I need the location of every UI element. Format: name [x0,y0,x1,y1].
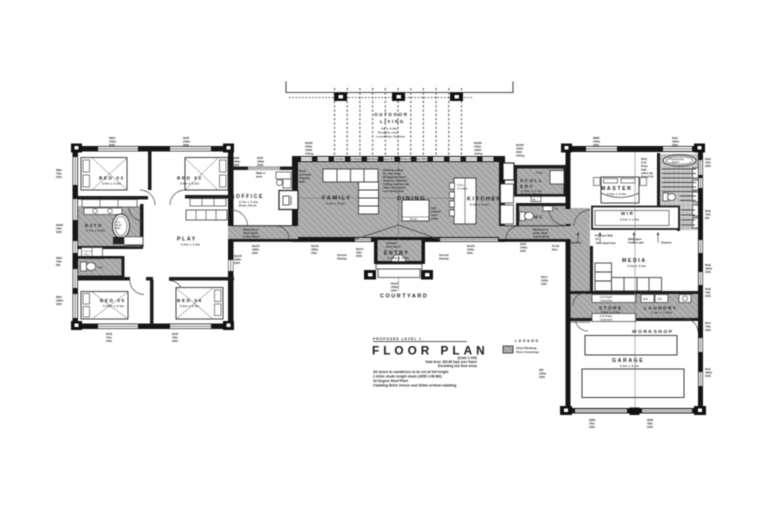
svg-text:3.2m x 2.1m: 3.2m x 2.1m [601,310,620,314]
svg-text:WBn: WBn [56,168,62,172]
svg-text:2050: 2050 [520,249,526,253]
svg-text:2400x: 2400x [467,248,475,252]
svg-text:2050: 2050 [56,230,62,234]
svg-text:BED 02: BED 02 [177,176,203,181]
svg-text:chimney: chimney [299,176,310,180]
svg-text:180x: 180x [356,251,362,255]
svg-text:1m island: 1m island [457,188,468,191]
svg-text:Wardrobe w: Wardrobe w [533,228,549,232]
svg-text:Vertical: Vertical [337,253,347,257]
svg-text:Bath: Bath [116,227,121,230]
svg-text:730x: 730x [56,260,62,264]
svg-text:730x: 730x [56,227,62,231]
svg-text:1000h: 1000h [305,148,313,152]
svg-text:Shiplap: Shiplap [337,257,347,261]
svg-text:Shadow: Shadow [571,241,582,245]
svg-text:Cupboards: Cupboards [600,318,613,321]
svg-text:2050: 2050 [672,143,678,147]
svg-text:2.5A: 2.5A [641,161,647,165]
svg-text:850: 850 [705,216,710,220]
svg-text:WCR: WCR [172,332,178,336]
svg-text:2050: 2050 [516,150,522,154]
svg-text:WxB: WxB [705,263,711,267]
svg-text:BED 05: BED 05 [100,298,126,303]
svg-text:4.2m x 4.2m: 4.2m x 4.2m [181,243,200,247]
svg-text:3.0m x 1.8m: 3.0m x 1.8m [620,218,639,222]
svg-text:sliding: sliding [474,152,483,156]
svg-text:WxDR: WxDR [474,141,482,145]
svg-text:WxA: WxA [705,321,711,325]
svg-text:1800x: 1800x [705,267,713,271]
svg-text:750x: 750x [172,336,178,340]
svg-text:3.6m x 3.2m: 3.6m x 3.2m [180,182,199,186]
svg-text:2400x: 2400x [183,140,191,144]
svg-text:WxCr: WxCr [541,275,548,279]
svg-text:BATH: BATH [85,223,103,228]
svg-text:under: under [431,217,438,221]
svg-text:WxB2: WxB2 [56,223,64,227]
svg-text:All doors to cavaliches to be: All doors to cavaliches to be set at ful… [373,370,449,374]
svg-text:2.4m Glide Stacker Sliding Doo: 2.4m Glide Stacker Sliding Doors 2.4m Gl… [336,158,431,161]
svg-text:2050: 2050 [705,328,711,332]
svg-text:Robe: Robe [641,164,648,168]
svg-text:Building ceiling: Building ceiling [383,168,403,172]
svg-text:2050: 2050 [56,302,62,306]
svg-text:WxOR: WxOR [516,143,524,147]
svg-text:Rich Head Over: Rich Head Over [596,241,616,245]
svg-text:Walk in: Walk in [256,171,266,175]
svg-text:2050: 2050 [705,164,711,168]
svg-text:WxxP: WxxP [391,282,398,286]
svg-text:Feature wall: Feature wall [628,241,644,245]
svg-text:WBA: WBA [56,256,62,260]
svg-text:2050: 2050 [647,425,653,429]
svg-text:Excluding sub floor areas: Excluding sub floor areas [438,364,477,368]
svg-text:Robe Shelf: Robe Shelf [239,204,257,208]
svg-text:2050: 2050 [356,254,362,258]
svg-text:2050: 2050 [541,282,547,286]
svg-text:2050: 2050 [593,143,599,147]
svg-text:1800x: 1800x [705,371,713,375]
svg-text:Hob: Hob [431,206,437,210]
svg-text:sliding: sliding [516,154,525,158]
svg-text:3.6m x 3.2m: 3.6m x 3.2m [102,182,121,186]
svg-text:1800x: 1800x [672,140,680,144]
svg-text:WxA: WxA [705,367,711,371]
svg-text:WRB: WRB [589,418,595,422]
svg-text:2050: 2050 [252,251,258,255]
svg-text:Shiplap: Shiplap [439,257,449,261]
svg-text:3.75m x 3.4m: 3.75m x 3.4m [103,304,124,308]
svg-text:1800x: 1800x [257,160,265,164]
svg-text:WxO: WxO [672,136,678,140]
svg-text:1/2: 1/2 [595,237,599,241]
svg-text:2400x: 2400x [109,140,117,144]
svg-text:WORKSHOP: WORKSHOP [632,329,674,335]
svg-text:WB4: WB4 [56,295,62,299]
svg-text:80 diagonal raked: 80 diagonal raked [383,175,406,179]
svg-text:WxCR: WxCR [234,254,242,258]
svg-text:3.6m x 3.4m: 3.6m x 3.4m [180,304,199,308]
svg-text:2050: 2050 [705,374,711,378]
svg-text:windows treatment: windows treatment [382,179,407,183]
svg-text:6.0m x 6.0m: 6.0m x 6.0m [326,202,345,206]
svg-text:730x: 730x [56,172,62,176]
svg-text:white Swall: white Swall [532,231,548,235]
svg-text:WxO: WxO [641,157,647,161]
svg-text:W/M: W/M [643,298,648,301]
svg-text:950D: 950D [233,163,239,167]
svg-text:2050: 2050 [705,270,711,274]
svg-text:WOP: WOP [183,136,189,140]
svg-text:Bench: Bench [410,218,417,221]
svg-text:2050: 2050 [705,294,711,298]
svg-text:rafter 1/8sq raked: rafter 1/8sq raked [383,186,406,190]
svg-text:PLUB: PLUB [552,244,559,248]
svg-text:2050: 2050 [391,289,397,293]
svg-text:2050: 2050 [106,339,112,343]
svg-text:Wardrobe w: Wardrobe w [243,228,259,232]
svg-text:850: 850 [56,263,61,267]
svg-text:WCR: WCR [106,332,112,336]
svg-text:6.0m x 6.0m: 6.0m x 6.0m [470,203,489,207]
svg-text:2400x: 2400x [305,145,313,149]
svg-text:1800x: 1800x [56,299,64,303]
svg-text:6.2m x 6.2m: 6.2m x 6.2m [620,364,639,368]
svg-text:Brick: Brick [299,169,306,173]
svg-text:750x: 750x [106,336,112,340]
svg-text:730x: 730x [705,213,711,217]
svg-text:Floor Coverings: Floor Coverings [516,350,539,354]
svg-text:Robe: Robe [84,254,90,256]
svg-text:BED 03: BED 03 [99,176,125,181]
svg-text:2050: 2050 [109,143,115,147]
svg-text:Cuben Block: Cuben Block [521,192,542,196]
svg-text:WxCD: WxCD [311,244,319,248]
svg-text:4.0m x 3.6m: 4.0m x 3.6m [627,264,646,268]
svg-text:730x: 730x [705,325,711,329]
svg-text:2050: 2050 [56,175,62,179]
svg-text:LEGEND: LEGEND [515,339,540,343]
svg-text:Blue: Blue [552,248,558,252]
svg-text:DINING: DINING [397,196,426,202]
svg-text:WRB: WRB [647,418,653,422]
svg-text:2050: 2050 [589,425,595,429]
svg-text:2400x: 2400x [516,147,524,151]
svg-text:SCULL: SCULL [520,178,543,183]
svg-text:2050: 2050 [467,251,473,255]
svg-text:1800x: 1800x [252,248,260,252]
svg-text:950D: 950D [257,163,263,167]
svg-text:laminate: laminate [386,241,397,245]
svg-text:raked clg: raked clg [641,171,653,175]
svg-text:2050: 2050 [311,251,317,255]
svg-text:WxCR: WxCR [467,244,475,248]
svg-text:OUTDOOR: OUTDOOR [374,112,409,117]
svg-text:2400x: 2400x [474,145,482,149]
svg-text:2400x: 2400x [593,140,601,144]
svg-text:730x: 730x [705,291,711,295]
svg-text:Cuben Block: Cuben Block [533,235,550,239]
svg-text:Stand: Stand [116,224,123,227]
svg-text:1800x: 1800x [234,258,242,262]
svg-text:WRO: WRO [109,136,115,140]
svg-text:Basins: Basins [672,161,680,164]
svg-text:2.410m stude height studs (265: 2.410m stude height studs (2650 LVB BK) [373,375,442,379]
svg-text:sliding: sliding [305,152,314,156]
svg-text:COURTYARD: COURTYARD [380,294,428,300]
svg-text:2050: 2050 [539,375,545,379]
svg-text:2.4m x 1.85m: 2.4m x 1.85m [651,311,672,315]
svg-text:WC: WC [534,215,544,220]
svg-text:2400x: 2400x [391,285,399,289]
svg-text:D/R: D/R [658,298,662,301]
svg-text:pivot panel: pivot panel [386,245,400,249]
svg-text:730x: 730x [705,161,711,165]
svg-text:2400x: 2400x [541,279,549,283]
svg-text:Cuben Block: Cuben Block [243,235,260,239]
svg-text:white Swall: white Swall [242,231,258,235]
svg-text:surround: surround [299,173,311,177]
svg-text:desk: desk [256,175,263,179]
svg-text:WCR: WCR [520,242,526,246]
svg-text:780x: 780x [589,422,595,426]
svg-text:Pressure Wall: Pressure Wall [595,234,613,238]
svg-text:2050: 2050 [234,261,240,265]
svg-text:LIVING: LIVING [380,119,405,124]
svg-text:2400x: 2400x [233,160,241,164]
svg-text:Flatbed: Flatbed [431,210,441,214]
svg-text:WIR: WIR [621,211,634,216]
svg-text:Cupboards: Cupboards [600,299,613,302]
svg-text:WMR: WMR [593,136,600,140]
svg-text:Shadow: Shadow [661,241,672,245]
svg-text:2050: 2050 [183,143,189,147]
svg-text:2050: 2050 [172,339,178,343]
svg-text:2400x: 2400x [520,246,528,250]
svg-text:WC: WC [98,266,104,270]
svg-text:WR: WR [539,368,543,372]
svg-text:WxB: WxB [705,287,711,291]
svg-text:over dining area: over dining area [383,189,404,193]
svg-text:WxCD: WxCD [252,244,260,248]
svg-text:3.7m x 2.8m: 3.7m x 2.8m [86,229,105,233]
svg-text:high: high [641,168,647,172]
svg-text:Ceiling exposed oak: Ceiling exposed oak [383,182,409,186]
svg-text:780x: 780x [647,422,653,426]
svg-text:Bath rm: Bath rm [84,250,92,253]
svg-text:Hyg: Hyg [554,209,559,211]
svg-text:1800x: 1800x [311,248,319,252]
svg-text:wide: wide [298,180,305,184]
svg-text:Fridge: Fridge [536,172,544,175]
svg-text:WxB: WxB [705,157,711,161]
svg-text:WxCb: WxCb [356,247,364,251]
svg-text:WOP: WOP [257,156,263,160]
svg-text:30 Degree Roof Pitch: 30 Degree Roof Pitch [373,379,408,383]
svg-text:2400x: 2400x [539,372,547,376]
svg-text:BED 04: BED 04 [177,298,203,303]
svg-text:Vertical: Vertical [439,253,449,257]
svg-text:Cladding Brick Veneer and Shih: Cladding Brick Veneer and Shiha vertical… [373,384,456,388]
svg-text:Louvetran System: Louvetran System [376,135,405,139]
svg-text:Free: Free [116,221,121,224]
svg-text:No step living: No step living [383,172,401,176]
svg-text:WxB: WxB [705,209,711,213]
svg-text:4.0m x 4.0m: 4.0m x 4.0m [607,192,626,196]
svg-text:1000h: 1000h [474,148,482,152]
svg-text:WOR: WOR [233,156,239,160]
svg-text:WxDR: WxDR [305,141,313,145]
svg-text:PROPOSED LEVEL 1: PROPOSED LEVEL 1 [373,337,422,341]
svg-text:3.45m x 3.0m: 3.45m x 3.0m [388,256,409,260]
